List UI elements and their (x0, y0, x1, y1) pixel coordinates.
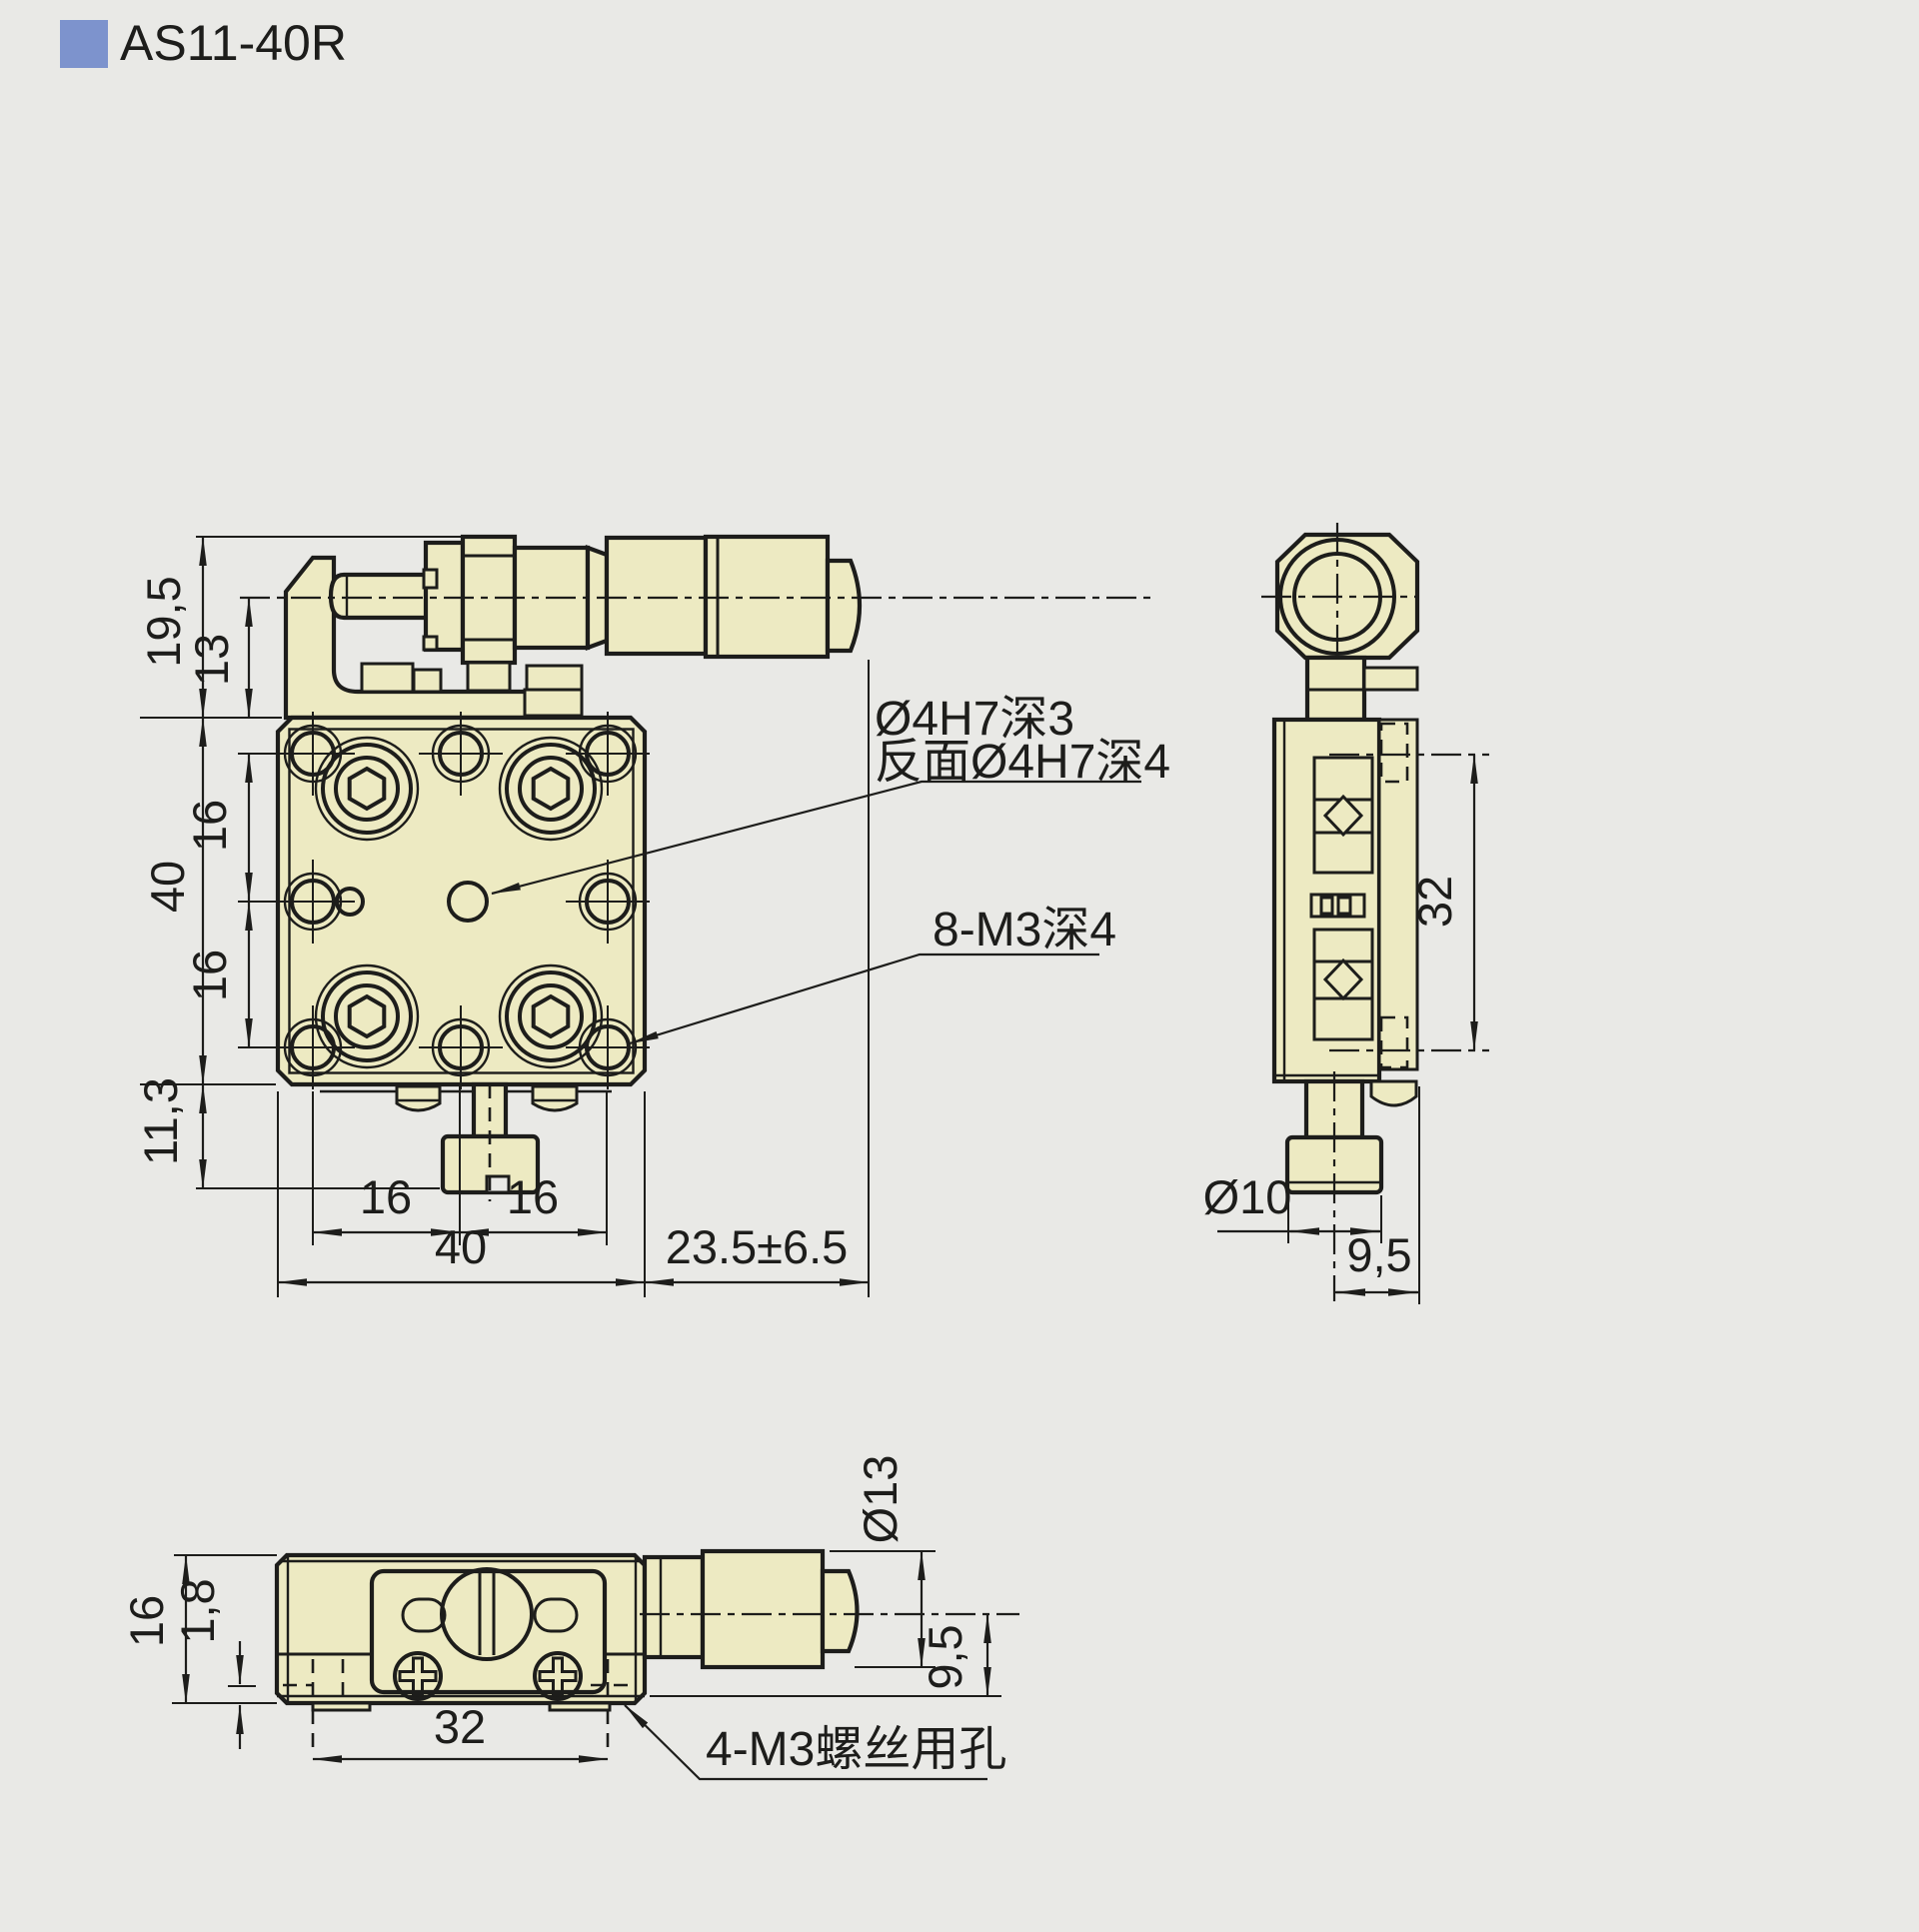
spindle (331, 575, 427, 618)
neck-side-block (1364, 668, 1417, 690)
foot-tab (550, 1703, 610, 1710)
foot-tab (313, 1703, 370, 1710)
micrometer-assembly (286, 537, 860, 718)
title-block: AS11-40R (60, 15, 347, 71)
label-center-hole-2: 反面Ø4H7深4 (875, 736, 1170, 789)
dim-base-plate: 1,8 (171, 1578, 224, 1643)
bottom-annotations: 4-M3螺丝用孔 (625, 1705, 1006, 1779)
slide-plate-bottom (372, 1571, 605, 1692)
dim-knob-dia: Ø10 (1203, 1170, 1292, 1223)
dim-hole-pitch-top: 16 (183, 800, 236, 852)
dim-hole-pitch-bottom: 16 (183, 950, 236, 1001)
bracket-foot (362, 664, 413, 692)
dim-micrometer-travel: 23.5±6.5 (666, 1220, 849, 1273)
side-view: 32 Ø10 9,5 (1203, 523, 1489, 1304)
tip-bottom (823, 1571, 858, 1651)
dim-hole-pitch-right: 16 (507, 1170, 559, 1223)
clamp-stem (468, 663, 510, 691)
dim-slide-span: 32 (1408, 876, 1461, 928)
dim-knob-offset: 9,5 (1346, 1228, 1411, 1281)
ratchet-tip (828, 561, 860, 651)
clamp-notch (424, 570, 437, 588)
dim-knob-drop: 11,3 (134, 1077, 187, 1165)
dim-spindle-offset: 13 (185, 634, 238, 686)
bracket-foot (414, 670, 441, 692)
thimble-bottom (703, 1551, 823, 1667)
front-view: 19,5 13 16 40 16 11,3 16 16 40 23.5±6.5 … (134, 537, 1170, 1297)
screw-boss (533, 1086, 577, 1110)
page-title: AS11-40R (120, 15, 347, 71)
dim-axis-offset: 9,5 (919, 1624, 971, 1689)
clamp-plate (426, 543, 463, 650)
dim-body-height: 16 (120, 1595, 173, 1647)
dim-plate-width: 40 (435, 1220, 487, 1273)
clamp-notch (424, 637, 437, 650)
title-accent-square (60, 20, 108, 68)
bracket-foot (525, 690, 582, 716)
label-mount-holes: 4-M3螺丝用孔 (706, 1723, 1006, 1776)
dim-screw-pitch: 32 (434, 1700, 486, 1753)
label-thread-holes: 8-M3深4 (933, 904, 1116, 957)
bracket-foot (527, 666, 582, 690)
leader-thread-holes (630, 955, 1099, 1043)
carriage-detail (1311, 758, 1372, 1039)
bottom-view: 16 1,8 32 Ø13 9,5 4-M3螺丝用孔 (120, 1455, 1019, 1779)
bracket-foot-side (1371, 1081, 1416, 1105)
dim-hole-pitch-left: 16 (360, 1170, 412, 1223)
drawing-sheet: AS11-40R (0, 0, 1919, 1932)
bracket-bottom (645, 1557, 703, 1657)
screw-boss (397, 1086, 440, 1110)
micrometer-thimble (607, 538, 706, 654)
dim-plate-height: 40 (141, 861, 194, 913)
dim-thimble-dia: Ø13 (854, 1455, 907, 1544)
stage-plate (271, 712, 650, 1089)
technical-drawing: AS11-40R (0, 0, 1919, 1932)
dim-bracket-height: 19,5 (137, 576, 190, 667)
